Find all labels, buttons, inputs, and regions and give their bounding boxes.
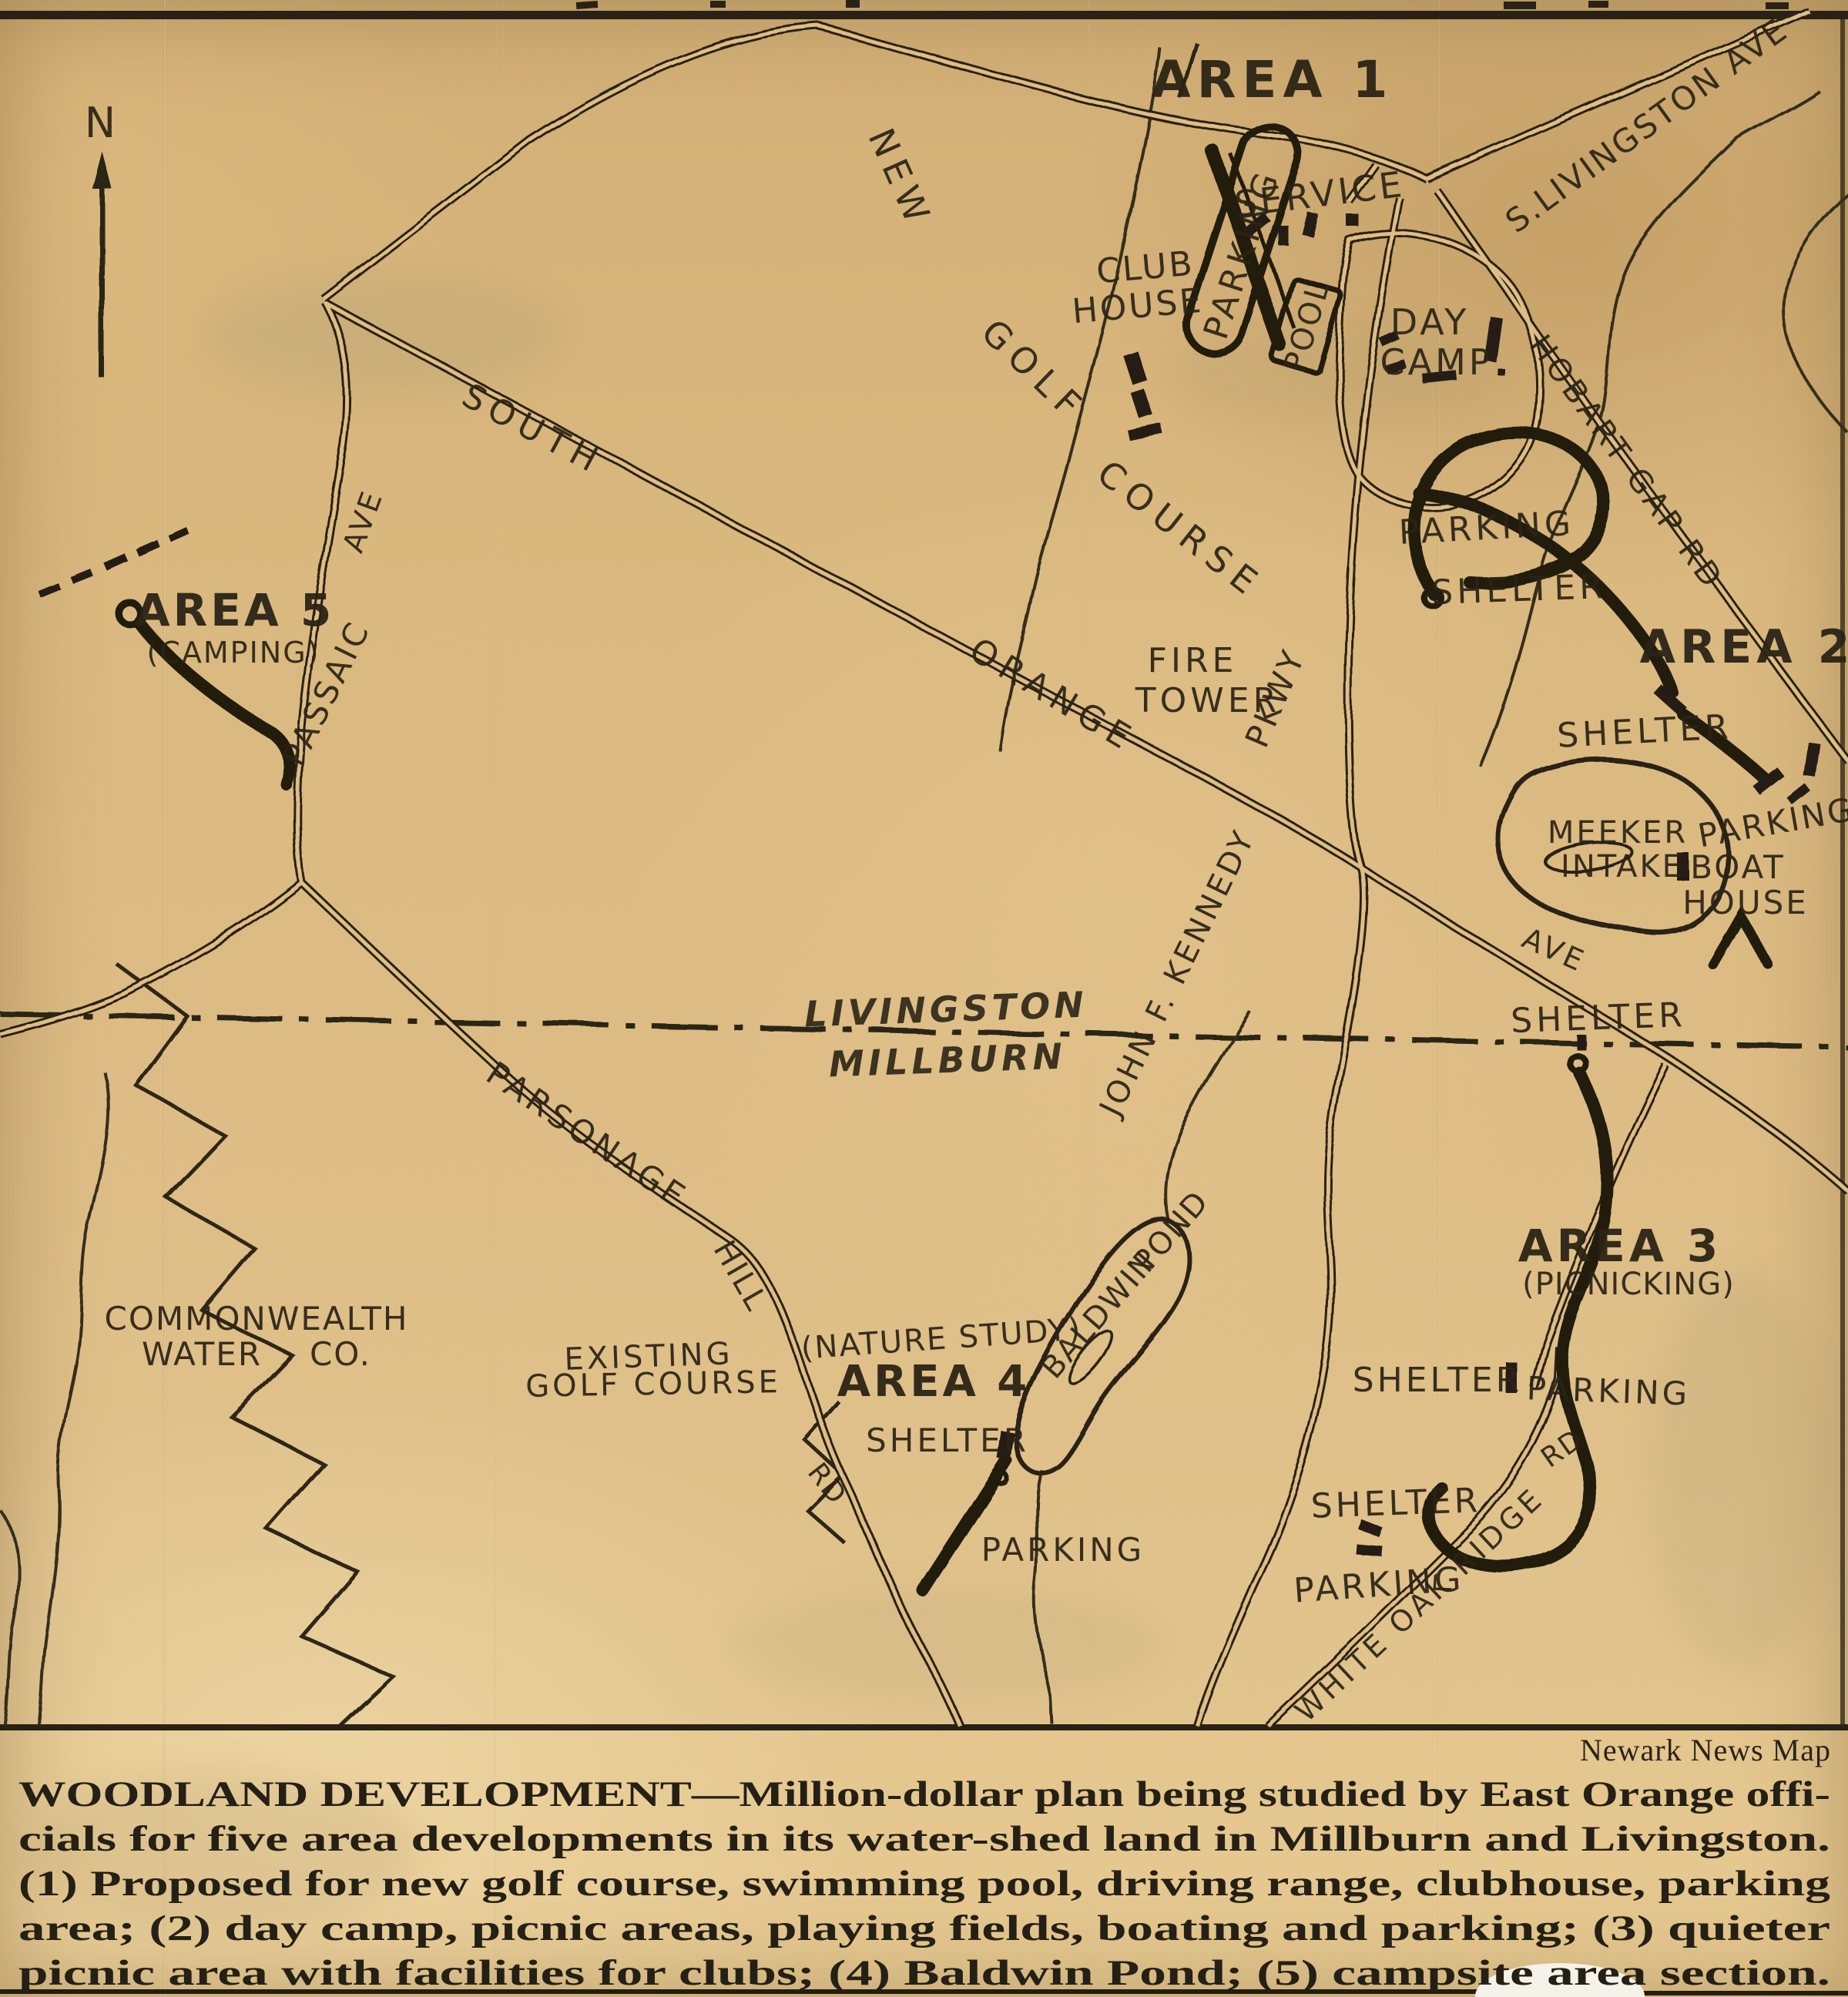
label-fire: FIRE — [1148, 641, 1238, 680]
caption-line-text: WOODLAND DEVELOPMENT—Million-dollar plan… — [18, 1772, 1830, 1817]
label-millburn: MILLBURN — [828, 1035, 1067, 1086]
label-area-1: AREA 1 — [1152, 50, 1394, 109]
label-area-4: AREA 4 — [837, 1357, 1031, 1407]
building-marker — [1498, 368, 1504, 375]
label-camping: (CAMPING) — [147, 636, 320, 670]
label-day: DAY — [1390, 301, 1470, 343]
label-boat: BOAT — [1690, 848, 1786, 886]
label-parking-area3a: PARKING — [1526, 1369, 1691, 1412]
caption-line: WOODLAND DEVELOPMENT—Million-dollar plan… — [18, 1772, 1830, 1817]
label-meeker: MEEKER — [1548, 815, 1688, 851]
label-co: CO. — [310, 1335, 371, 1373]
label-shelter-area4: SHELTER — [866, 1421, 1029, 1459]
woodland-development-map: N AREA 1 SERVICE CLUB HOUSE PARKING POOL… — [0, 0, 1848, 1730]
newspaper-clipping: N AREA 1 SERVICE CLUB HOUSE PARKING POOL… — [0, 0, 1848, 1997]
label-area-5: AREA 5 — [136, 584, 335, 636]
map-credit: Newark News Map — [1369, 1732, 1831, 1768]
caption-line-text: (1) Proposed for new golf course, swimmi… — [18, 1861, 1830, 1906]
caption-line-text: picnic area with facilities for clubs; (… — [18, 1951, 1830, 1995]
label-area-3: AREA 3 — [1518, 1220, 1722, 1272]
caption-line: picnic area with facilities for clubs; (… — [18, 1951, 1830, 1995]
label-picnicking: (PICNICKING) — [1522, 1267, 1735, 1302]
building-marker — [1279, 226, 1289, 246]
label-commonwealth: COMMONWEALTH — [105, 1300, 409, 1337]
label-shelter-boundary: SHELTER — [1510, 995, 1686, 1041]
label-shelter-area3a: SHELTER — [1353, 1361, 1523, 1400]
caption-line-text: cials for five area developments in its … — [18, 1817, 1830, 1861]
caption-line: cials for five area developments in its … — [18, 1817, 1830, 1861]
label-intake: INTAKE — [1561, 849, 1684, 884]
label-camp: CAMP — [1380, 341, 1493, 383]
label-existing-golf: GOLF COURSE — [525, 1364, 781, 1405]
compass-n-label: N — [85, 99, 116, 147]
label-shelter-area3b: SHELTER — [1310, 1481, 1481, 1526]
caption-text: WOODLAND DEVELOPMENT—Million-dollar plan… — [18, 1772, 1830, 1995]
caption-line: area; (2) day camp, picnic areas, playin… — [18, 1906, 1830, 1951]
label-parking-area4: PARKING — [981, 1531, 1145, 1569]
label-water: WATER — [142, 1335, 262, 1373]
label-area-2: AREA 2 — [1640, 620, 1848, 674]
caption-line: (1) Proposed for new golf course, swimmi… — [18, 1861, 1830, 1906]
building-marker — [1347, 214, 1359, 227]
label-boat-house: HOUSE — [1682, 884, 1809, 921]
caption-line-text: area; (2) day camp, picnic areas, playin… — [18, 1906, 1830, 1951]
label-shelter-area2: SHELTER — [1430, 567, 1607, 613]
